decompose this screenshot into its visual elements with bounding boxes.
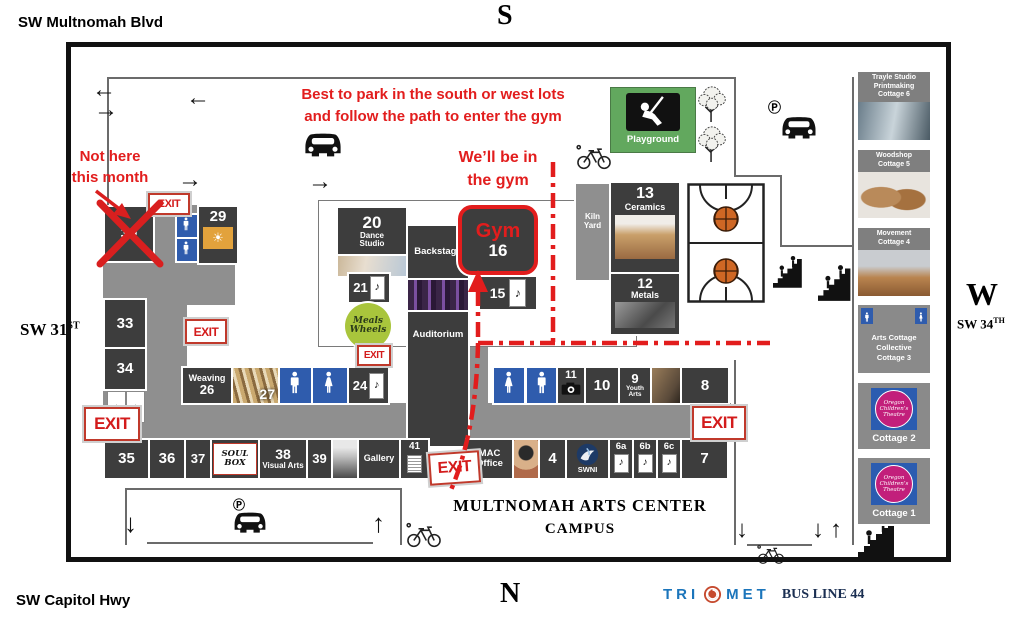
room-6a: 6a ♪ [610,440,632,478]
room-38-number: 38 [275,447,291,462]
parking-lane-line [780,245,852,247]
arrow-right-icon: → [308,170,332,194]
gym-note-line1: We’ll be in [443,146,553,169]
cottage-3-line1: Arts Cottage [858,333,930,343]
room-4: 4 [540,440,565,478]
restroom-female-icon [322,371,338,401]
gym-note: We’ll be in the gym [443,146,553,192]
restroom-male-icon [864,310,871,323]
compass-south: S [497,0,513,32]
room-27-photo: 27 [233,368,278,403]
cottage-row-boundary-line [852,77,854,545]
cottage-3-line2: Collective [858,343,930,353]
room-27-number: 27 [259,386,278,403]
restroom-icon-small [861,308,873,324]
soul-box-sign: SOUL BOX [213,443,257,475]
stage-curtain-photo [408,280,468,310]
kiln-yard: Kiln Yard [576,184,609,280]
cottage-1: Oregon Children’s Theatre Cottage 1 [858,458,930,524]
cottage-4-header: Movement Cottage 4 [858,228,930,250]
room-41-number: 41 [409,442,420,453]
room-15: 15 ♪ [480,277,536,309]
meals-on-wheels-logo: Meals Wheels [345,303,391,349]
arrow-right-icon: → [178,168,202,192]
trimet-tri: TRI [663,586,699,603]
room-8: 8 [682,368,728,403]
room-6b: 6b ♪ [634,440,656,478]
street-label-top: SW Multnomah Blvd [18,14,163,31]
arrow-down-icon: ↓ [736,518,748,542]
room-8-number: 8 [701,378,709,394]
transit-strip: TRI MET BUS LINE 44 [663,585,864,604]
cottage-6-line3: Cottage 6 [878,91,910,100]
room-24-number: 24 [353,379,367,393]
room-36: 36 [150,440,184,478]
stairs-icon [818,262,854,302]
room-26-number: 26 [200,383,214,397]
room-10-number: 10 [594,378,611,394]
restroom-male-icon [535,371,549,401]
restroom-men [280,368,311,403]
arrow-up-icon: ↑ [372,510,385,536]
street-left-suffix: ST [67,320,79,331]
poster-icon [407,455,422,473]
street-label-bottom: SW Capitol Hwy [16,592,130,609]
restroom-icon-small [915,308,927,324]
bus-line-label: BUS LINE 44 [782,587,864,603]
oct-line3: Theatre [883,412,905,418]
room-13-label: Ceramics [625,203,666,212]
bike-rack-icon [576,142,612,172]
tree-icon [695,84,729,122]
exit-sign: EXIT [185,319,227,344]
restroom-men [527,368,556,403]
basketball-court [687,183,765,303]
dance-studio-photo [338,256,406,276]
room-15-number: 15 [490,286,506,301]
music-note-icon: ♪ [370,276,385,300]
cottage-4-line2: Cottage 4 [878,239,910,248]
cottage-1-label: Cottage 1 [872,508,915,519]
metals-photo [615,302,675,328]
restroom-icon-small [177,239,197,261]
auditorium: Auditorium [408,312,468,446]
street-label-right: SW 34TH [957,316,1005,332]
street-left-main: SW 31 [20,320,67,339]
room-9-youth-arts: 9 Youth Arts [620,368,650,403]
meals-logo-text2: Wheels [350,326,387,335]
swni-label: SWNI [578,466,598,474]
gym-note-line2: the gym [443,169,553,192]
swing-glyph [635,96,671,128]
gym-label: Gym [476,221,520,242]
campus-title-line1: MULTNOMAH ARTS CENTER [448,496,712,516]
room-36-number: 36 [159,451,176,467]
cottage-6-photo [858,102,930,140]
music-note-icon: ♪ [662,454,677,473]
gym-room-16: Gym 16 [458,205,538,275]
cottage-4-movement: Movement Cottage 4 [858,228,930,296]
childrens-theatre-logo: Oregon Children’s Theatre [875,390,913,428]
music-note-icon: ♪ [509,279,526,307]
soul-box-studio: SOUL BOX [212,440,258,478]
exit-sign: EXIT [692,406,746,440]
playground-label: Playground [627,134,679,145]
cottage-5-line2: Cottage 5 [878,161,910,170]
room-9-label2: Arts [628,392,641,399]
room-7-number: 7 [700,451,708,467]
cottage-2: Oregon Children’s Theatre Cottage 2 [858,383,930,449]
cottage-6-header: Trayle Studio Printmaking Cottage 6 [858,72,930,102]
gym-number: 16 [489,242,508,260]
cottage-6-line2: Printmaking [874,83,914,92]
room-35-number: 35 [118,451,135,467]
room-30: 30 [105,207,153,261]
cottage-5-header: Woodshop Cottage 5 [858,150,930,172]
room-33: 33 [105,300,145,347]
room-6c-number: 6c [664,442,675,452]
music-note-icon: ♪ [614,454,629,473]
cottage-6-trayle-studio: Trayle Studio Printmaking Cottage 6 [858,72,930,140]
tree-icon [695,124,729,162]
cottage-5-photo [858,172,930,218]
street-right-main: SW 34 [957,316,993,331]
cottage-5-woodshop: Woodshop Cottage 5 [858,150,930,218]
street-right-suffix: TH [993,316,1005,325]
room-12-metals: 12 Metals [611,274,679,334]
restroom-male-icon [182,241,192,259]
restroom-female-icon [918,310,925,323]
ceramics-photo [615,215,675,259]
room-30-number: 30 [121,226,138,242]
arrow-down-icon: ↓ [124,510,137,536]
bike-rack-icon [406,520,442,550]
parking-note-line2: and follow the path to enter the gym [288,106,578,128]
south-lot-line [125,488,402,490]
room-39: 39 [308,440,331,478]
backstage-label: Backstage [414,247,462,257]
car-icon [300,126,346,158]
restroom-icon-small [177,215,197,237]
arrow-down-icon: ↓ [812,518,824,542]
room-6c: 6c ♪ [658,440,680,478]
room-39-photo [333,440,357,478]
restroom-male-icon [182,217,192,235]
exit-sign: EXIT [84,407,140,441]
cottage-3-arts-collective: Arts Cottage Collective Cottage 3 [858,305,930,373]
street-label-left: SW 31ST [20,320,80,340]
car-icon [230,506,270,534]
room-12-label: Metals [631,291,659,300]
room-11: 11 [558,368,584,403]
room-29-number: 29 [210,209,227,225]
trimet-logo-icon [703,585,722,604]
room-26-weaving: Weaving 26 [183,368,231,403]
cottage-2-logo-tile: Oregon Children’s Theatre [871,388,917,430]
music-note-icon: ♪ [638,454,653,473]
room-7: 7 [682,440,727,478]
room-34-number: 34 [117,361,134,377]
room-10: 10 [586,368,618,403]
room-34: 34 [105,349,145,389]
oct-line3: Theatre [883,487,905,493]
stairs-icon [773,250,805,292]
room-13-number: 13 [636,186,654,203]
room-29-logo: ☀ [203,227,233,249]
gallery: Gallery [359,440,399,478]
parking-lane-line [107,77,736,79]
room-35: 35 [105,440,148,478]
room-37: 37 [186,440,210,478]
room-20-dance-studio: 20 Dance Studio [338,208,406,254]
trimet-met: MET [726,586,770,603]
room-6b-number: 6b [639,442,650,452]
cottage-4-photo [858,250,930,296]
restroom-women [313,368,347,403]
room-33-number: 33 [117,316,134,332]
room-9-number: 9 [631,372,638,386]
kiln-yard-label2: Yard [584,221,601,230]
kiln-yard-label1: Kiln [585,212,600,221]
parking-lane-line [780,175,782,247]
swni-office: SWNI [567,440,608,478]
room-11-number: 11 [565,370,577,382]
restroom-male-icon [288,371,303,401]
parking-note: Best to park in the south or west lots a… [288,84,578,128]
car-icon [778,110,820,140]
cottage-6-line1: Trayle Studio [872,74,916,83]
room-39-number: 39 [312,452,326,466]
compass-north: N [500,578,520,610]
campus-map: SW Multnomah Blvd S E SW 31ST W SW 34TH … [0,0,1024,619]
cottage-4-line1: Movement [877,230,912,239]
room-38-visual-arts: 38 Visual Arts [260,440,306,478]
cottage-2-label: Cottage 2 [872,433,915,444]
arrow-up-icon: ↑ [830,518,842,542]
exit-sign: EXIT [428,450,481,485]
bike-rack-icon [757,544,785,565]
arrow-right-icon: → [94,98,118,122]
campus-title-line2: CAMPUS [448,521,712,538]
cottage-5-line1: Woodshop [876,152,912,161]
arrow-left-icon: ← [186,86,210,110]
south-lot-line [400,488,402,545]
room-24: 24 ♪ [349,368,388,403]
parking-lane-line [734,175,782,177]
room-20-number: 20 [363,214,382,232]
gallery-label: Gallery [364,454,395,463]
cottage-3-line3: Cottage 3 [858,353,930,363]
cottage-3-header: Arts Cottage Collective Cottage 3 [858,333,930,362]
room-13-ceramics: 13 Ceramics [611,183,679,272]
youth-arts-photo [652,368,680,403]
room-41: 41 [401,440,428,478]
staff-photo [514,440,538,478]
auditorium-label: Auditorium [413,330,464,340]
room-29: 29 ☀ [199,207,237,263]
room-21-number: 21 [353,281,367,295]
room-6a-number: 6a [616,442,627,452]
room-4-number: 4 [548,451,556,467]
room-20-label2: Studio [360,240,385,248]
room-37-number: 37 [191,452,205,466]
exit-sign: EXIT [148,193,190,215]
not-here-note: Not here this month [52,146,168,188]
cottage-1-logo-tile: Oregon Children’s Theatre [871,463,917,505]
not-here-line2: this month [52,167,168,188]
room-21: 21 ♪ [349,274,389,302]
playground: Playground [610,87,696,153]
south-lot-line [147,542,373,544]
campus-title: MULTNOMAH ARTS CENTER CAMPUS [448,496,712,538]
not-here-line1: Not here [52,146,168,167]
swing-icon [626,93,680,131]
camera-icon [561,382,581,395]
music-note-icon: ♪ [369,373,384,399]
swni-logo-icon [576,443,599,466]
room-12-number: 12 [637,276,653,291]
parking-note-line1: Best to park in the south or west lots [288,84,578,106]
room-38-label: Visual Arts [262,462,303,470]
exit-sign: EXIT [357,345,391,366]
parking-lane-line [734,77,736,177]
restroom-women [494,368,524,403]
restroom-female-icon [502,371,517,401]
compass-west: W [966,276,998,313]
childrens-theatre-logo: Oregon Children’s Theatre [875,465,913,503]
